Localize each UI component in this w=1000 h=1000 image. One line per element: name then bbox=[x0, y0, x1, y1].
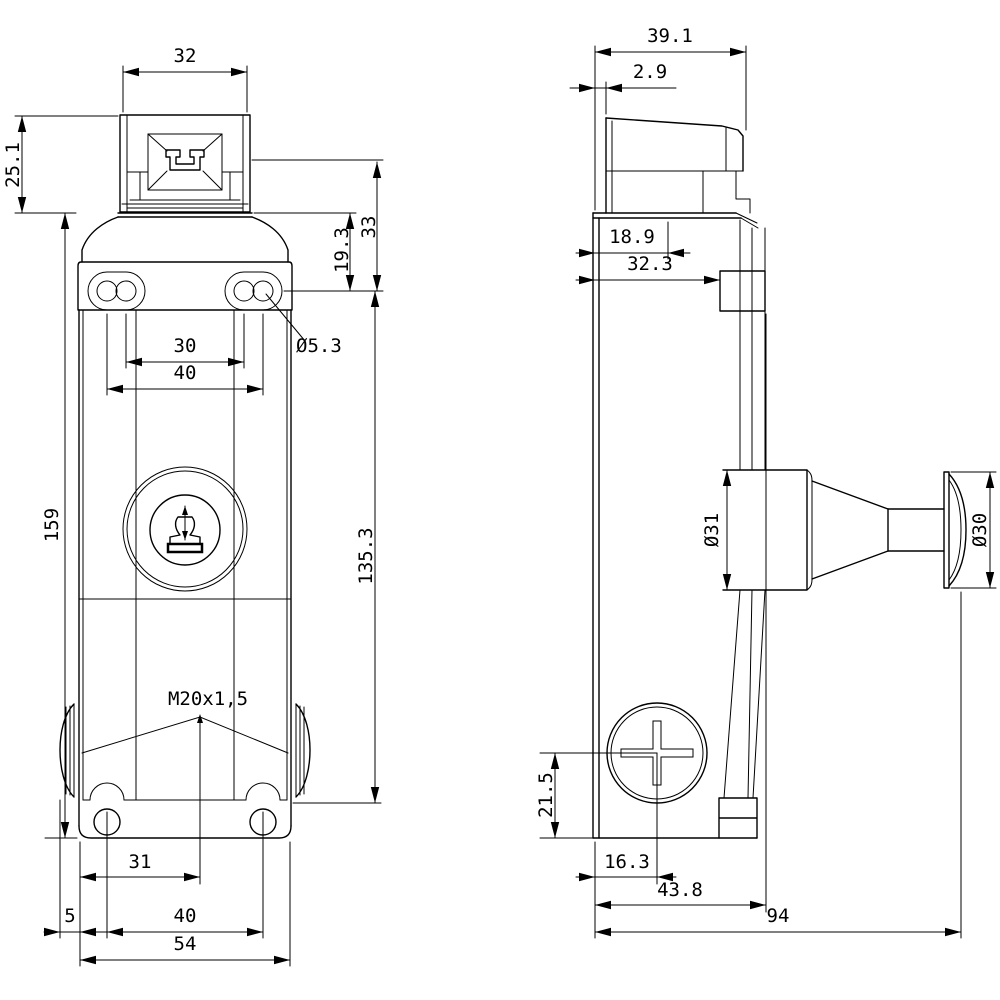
arrowhead-icon bbox=[182, 531, 188, 540]
dim-base-width: 54 bbox=[80, 842, 290, 966]
front-head bbox=[120, 115, 250, 212]
dimension-arrowheads bbox=[18, 48, 994, 964]
dim-head-axis-to-slots-label: 33 bbox=[358, 216, 380, 239]
arrowhead-icon bbox=[126, 358, 142, 366]
dimensions-front: 32 25.1 159 33 19.3 135.3 30 40 bbox=[2, 45, 383, 966]
dim-wall-to-head-axis-label: 18.9 bbox=[609, 226, 655, 248]
front-base-plate bbox=[79, 783, 291, 838]
dim-head-width-label: 32 bbox=[174, 45, 197, 67]
front-cable-gland-left bbox=[60, 704, 74, 797]
dim-top-to-slots-label: 19.3 bbox=[331, 227, 353, 273]
arrowhead-icon bbox=[61, 822, 69, 838]
arrowhead-icon bbox=[184, 873, 200, 881]
technical-drawing-page: 32 25.1 159 33 19.3 135.3 30 40 bbox=[0, 0, 1000, 1000]
arrowhead-icon bbox=[107, 385, 123, 393]
dim-base-hole-spacing-label: 40 bbox=[174, 905, 197, 927]
front-view bbox=[60, 115, 310, 838]
arrowhead-icon bbox=[231, 68, 247, 76]
dim-head-axis-to-slots: 33 bbox=[252, 160, 383, 291]
dim-slot-inner-spacing-label: 30 bbox=[174, 335, 197, 357]
arrowhead-icon bbox=[373, 162, 381, 178]
arrowhead-icon bbox=[247, 385, 263, 393]
arrowhead-icon bbox=[247, 928, 263, 936]
arrowhead-icon bbox=[274, 956, 290, 964]
dim-slots-to-base-label: 135.3 bbox=[355, 527, 377, 584]
dim-head-depth-label: 39.1 bbox=[647, 25, 693, 47]
arrowhead-icon bbox=[551, 753, 559, 769]
dim-plunger-diameter-label: Ø31 bbox=[701, 513, 723, 547]
arrowhead-icon bbox=[18, 197, 26, 213]
arrowhead-icon bbox=[107, 928, 123, 936]
arrowhead-icon bbox=[18, 116, 26, 132]
arrowhead-icon bbox=[346, 213, 354, 229]
arrowhead-icon bbox=[750, 901, 766, 909]
arrowhead-icon bbox=[579, 873, 595, 881]
dim-cable-entry-thread-label: M20x1,5 bbox=[168, 688, 248, 710]
dim-slots-to-base: 135.3 bbox=[293, 291, 381, 803]
arrowhead-icon bbox=[986, 572, 994, 588]
dim-body-height: 159 bbox=[41, 213, 77, 838]
arrowhead-icon bbox=[730, 48, 746, 56]
arrowhead-icon bbox=[371, 787, 379, 803]
arrowhead-icon bbox=[606, 84, 622, 92]
arrowhead-icon bbox=[704, 276, 720, 284]
arrowhead-icon bbox=[595, 928, 611, 936]
side-head bbox=[606, 118, 750, 213]
arrowhead-icon bbox=[44, 928, 60, 936]
dim-edge-to-entry-axis: 31 bbox=[80, 842, 200, 884]
dim-cap-diameter-label: Ø30 bbox=[969, 513, 991, 547]
dim-edge-to-entry-axis-label: 31 bbox=[129, 851, 152, 873]
dim-top-to-slots: 19.3 bbox=[254, 213, 356, 291]
switch-dimension-drawing: 32 25.1 159 33 19.3 135.3 30 40 bbox=[0, 0, 1000, 1000]
arrowhead-icon bbox=[80, 928, 96, 936]
arrowhead-icon bbox=[228, 358, 244, 366]
arrowhead-icon bbox=[371, 291, 379, 307]
dim-cable-entry-thread: M20x1,5 bbox=[82, 688, 288, 884]
dim-wall-to-clamp-face-label: 32.3 bbox=[627, 253, 673, 275]
front-cable-gland-right bbox=[296, 704, 310, 797]
arrowhead-icon bbox=[551, 822, 559, 838]
dim-overall-depth: 94 bbox=[595, 592, 961, 938]
arrowhead-icon bbox=[346, 275, 354, 291]
dim-head-front-offset-label: 2.9 bbox=[633, 61, 667, 83]
dim-gland-protrusion-label: 5 bbox=[64, 905, 75, 927]
side-clamp-block bbox=[720, 271, 765, 311]
arrowhead-icon bbox=[123, 68, 139, 76]
arrowhead-icon bbox=[373, 275, 381, 291]
front-head-plunger-slot bbox=[166, 150, 204, 170]
dim-screw-axis-height-label: 21.5 bbox=[535, 772, 557, 818]
dim-wall-to-screw-axis-label: 16.3 bbox=[604, 851, 650, 873]
arrowhead-icon bbox=[80, 956, 96, 964]
dim-wall-to-clamp-face: 32.3 bbox=[576, 253, 720, 280]
dim-overall-depth-label: 94 bbox=[767, 905, 790, 927]
dim-gland-protrusion: 5 bbox=[44, 800, 263, 966]
dim-plunger-diameter: Ø31 bbox=[701, 470, 727, 590]
dim-slot-outer-spacing-label: 40 bbox=[174, 362, 197, 384]
dim-body-height-label: 159 bbox=[41, 508, 63, 542]
arrowhead-icon bbox=[182, 506, 188, 515]
side-plunger bbox=[723, 470, 966, 590]
arrowhead-icon bbox=[579, 84, 595, 92]
arrowhead-icon bbox=[986, 472, 994, 488]
dim-slot-inner-spacing: 30 bbox=[126, 314, 244, 368]
dim-base-width-label: 54 bbox=[174, 933, 197, 955]
arrowhead-icon bbox=[197, 714, 203, 723]
arrowhead-icon bbox=[595, 48, 611, 56]
dim-body-depth-label: 43.8 bbox=[657, 879, 703, 901]
dim-head-width: 32 bbox=[123, 45, 247, 112]
arrowhead-icon bbox=[723, 470, 731, 486]
dim-cap-diameter: Ø30 bbox=[951, 472, 996, 588]
arrowhead-icon bbox=[80, 873, 96, 881]
side-body bbox=[593, 213, 966, 838]
dim-head-height-label: 25.1 bbox=[2, 142, 24, 188]
dimensions-side: 39.1 2.9 18.9 32.3 Ø31 Ø30 21.5 16.3 bbox=[535, 25, 996, 938]
arrowhead-icon bbox=[945, 928, 961, 936]
arrowhead-icon bbox=[595, 901, 611, 909]
dim-head-depth: 39.1 bbox=[595, 25, 746, 210]
arrowhead-icon bbox=[723, 574, 731, 590]
arrowhead-icon bbox=[61, 213, 69, 229]
dim-slot-hole-diameter-label: Ø5.3 bbox=[296, 335, 342, 357]
front-body bbox=[60, 212, 310, 838]
